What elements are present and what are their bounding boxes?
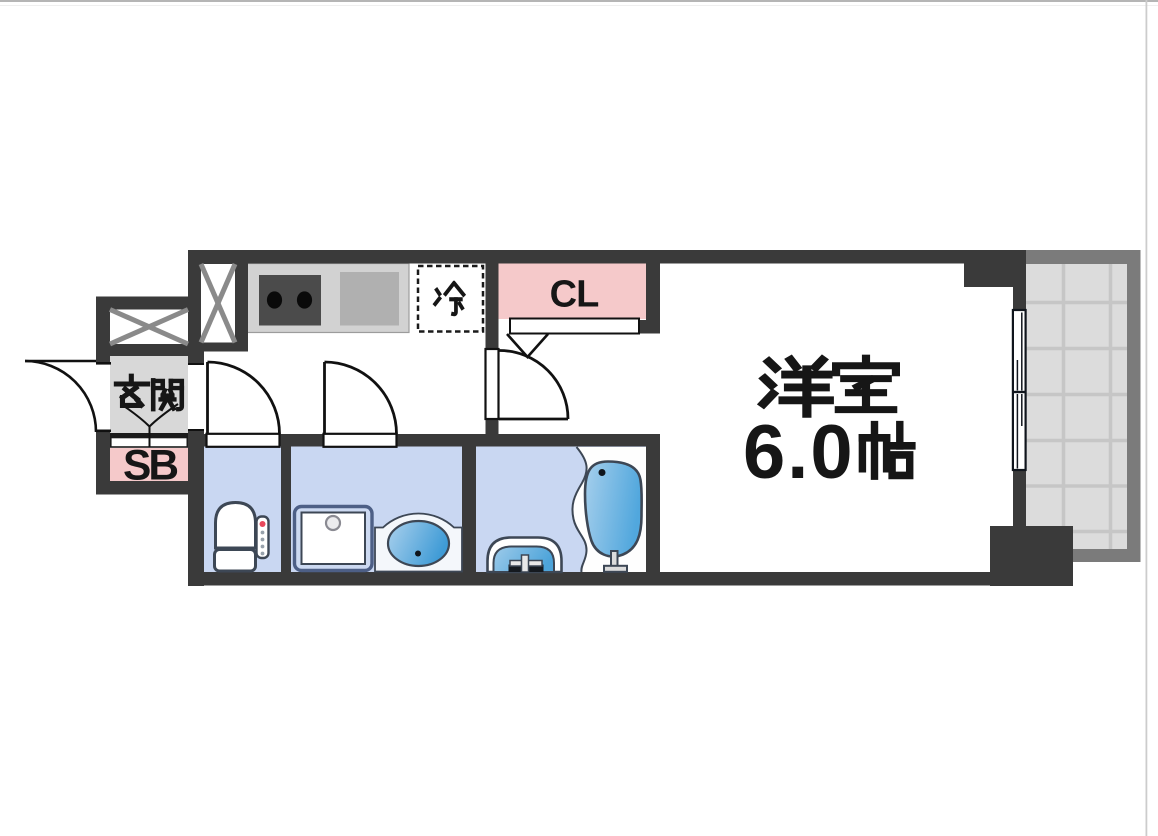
svg-text:SB: SB	[123, 443, 177, 490]
svg-text:CL: CL	[550, 274, 599, 316]
svg-text:6.0: 6.0	[743, 410, 855, 495]
